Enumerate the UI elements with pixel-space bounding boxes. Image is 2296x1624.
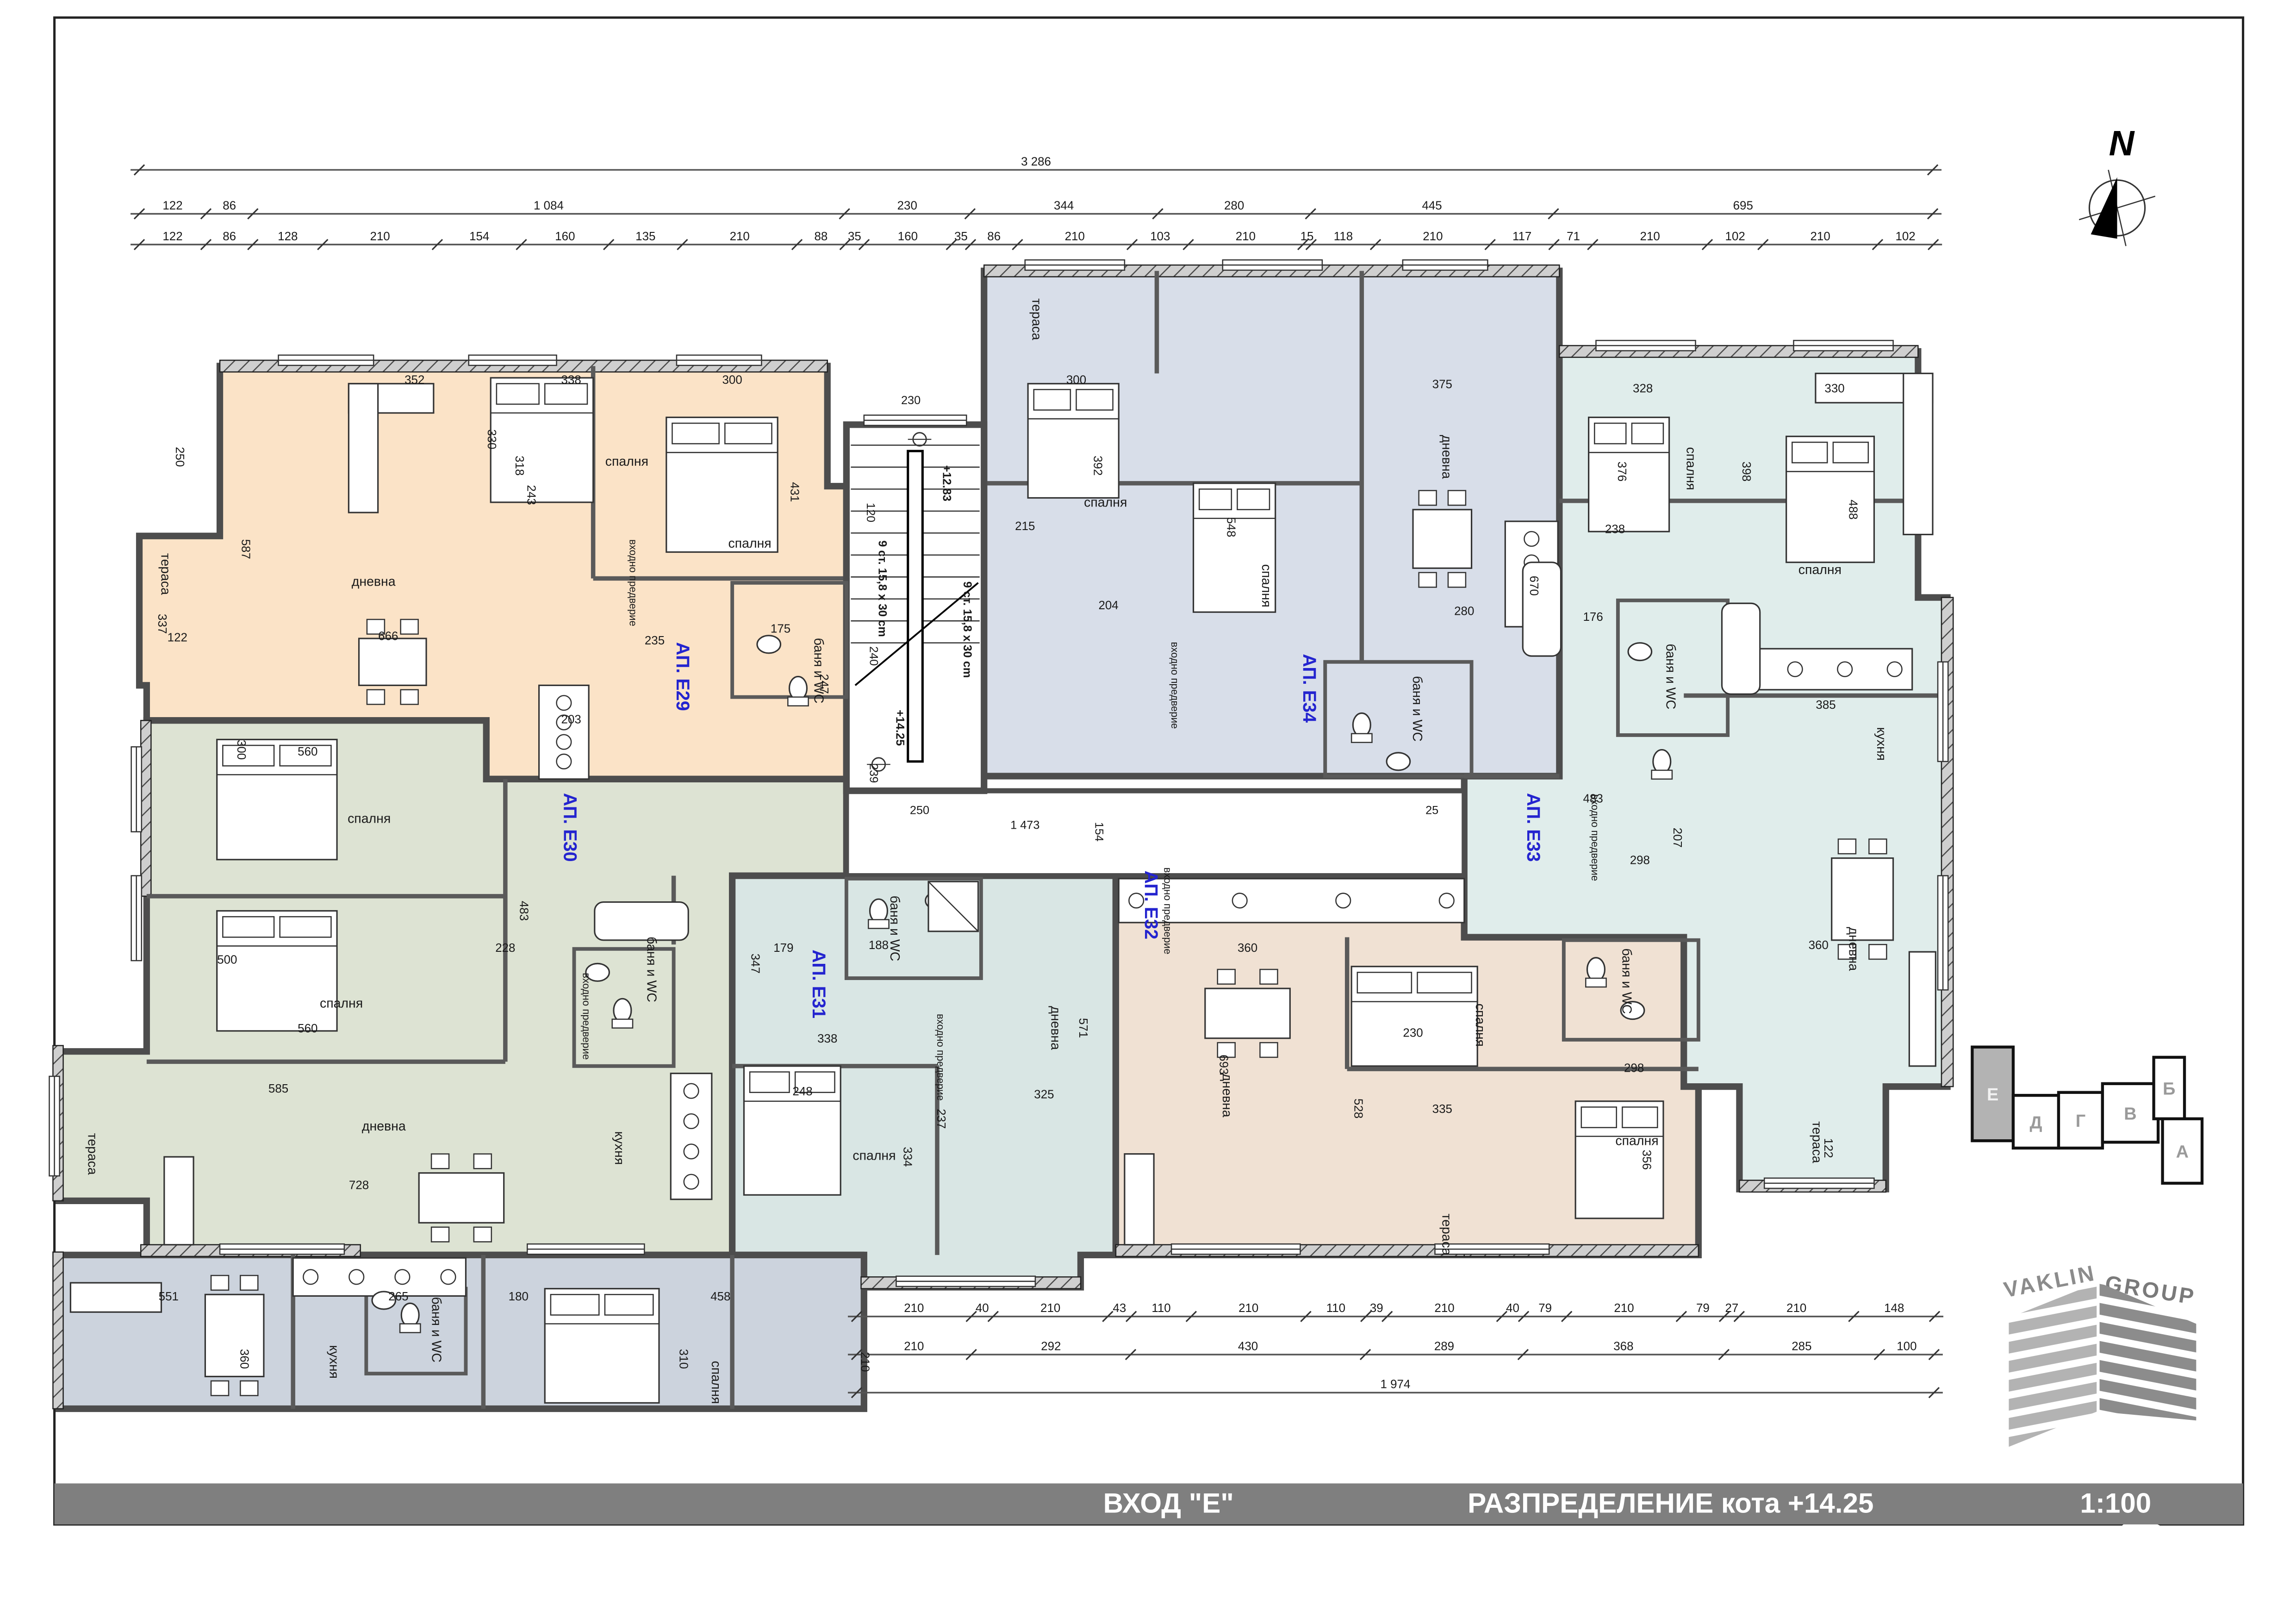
dim-value: 360 xyxy=(1238,942,1257,955)
dim-value: 1 974 xyxy=(1380,1378,1410,1391)
sofa xyxy=(1904,374,1933,535)
dim-value: 670 xyxy=(1527,576,1540,596)
chair xyxy=(1218,969,1235,984)
bed-pillow xyxy=(672,423,719,443)
dim-value: 100 xyxy=(1897,1340,1916,1353)
dim-value: 695 xyxy=(1733,199,1753,212)
room-label: спалня xyxy=(852,1148,896,1163)
dim-value: 35 xyxy=(954,230,968,243)
bed-pillow xyxy=(1237,489,1269,510)
room-label: входно предверие xyxy=(628,539,639,626)
hatched-wall xyxy=(141,720,151,896)
dim-value: 210 xyxy=(730,230,750,243)
chair xyxy=(1419,491,1437,506)
dim-value: 356 xyxy=(1640,1150,1653,1170)
dim-value: 330 xyxy=(485,429,498,449)
stair-text: 9 ст. 15,8 х 30 cm xyxy=(961,581,974,678)
apartment-label-e32: АП. Е32 xyxy=(1141,870,1161,939)
dim-value: 318 xyxy=(513,456,526,475)
keyplan-letter-Е: Е xyxy=(1987,1085,1998,1105)
dim-value: 188 xyxy=(869,939,889,952)
dim-value: 265 xyxy=(388,1290,408,1303)
dim-value: 40 xyxy=(976,1302,989,1315)
kitchen-counter xyxy=(293,1258,466,1296)
dim-value: 210 xyxy=(904,1340,924,1353)
bed-pillow xyxy=(497,384,539,404)
chair xyxy=(1869,944,1886,959)
room-label: баня и WC xyxy=(1619,948,1634,1014)
dim-value: 110 xyxy=(1151,1302,1170,1315)
dim-value: 210 xyxy=(1434,1302,1454,1315)
dim-value: 430 xyxy=(1238,1340,1258,1353)
stair-text: +12.83 xyxy=(940,465,953,501)
bed-pillow xyxy=(750,1072,789,1092)
dim-value: 27 xyxy=(1725,1302,1739,1315)
toilet-tank xyxy=(612,1019,633,1028)
chair xyxy=(1448,491,1466,506)
bed-pillow xyxy=(551,1294,599,1315)
dim-value: 338 xyxy=(561,374,581,387)
corridor xyxy=(846,791,1464,875)
chair xyxy=(1838,839,1856,854)
dim-value: 102 xyxy=(1895,230,1915,243)
room-label: дневна xyxy=(352,574,396,589)
room-label: входно предверие xyxy=(1162,868,1173,955)
dim-value: 458 xyxy=(710,1290,730,1303)
dim-value: 86 xyxy=(223,199,236,212)
dim-value: 210 xyxy=(1640,230,1660,243)
dim-value: 86 xyxy=(223,230,236,243)
chair xyxy=(474,1227,492,1242)
dim-value: 280 xyxy=(1454,605,1474,618)
dim-value: 352 xyxy=(404,374,424,387)
dim-value: 728 xyxy=(349,1179,369,1192)
title-scale: 1:100 xyxy=(2080,1488,2152,1519)
dim-value: 548 xyxy=(1224,517,1237,537)
room-label: кухня xyxy=(1874,727,1889,761)
dim-value: 280 xyxy=(1224,199,1244,212)
dim-value: 210 xyxy=(370,230,390,243)
dim-value: 1 084 xyxy=(534,199,564,212)
dim-value: 88 xyxy=(815,230,828,243)
dim-value: 325 xyxy=(1034,1088,1054,1101)
bathtub xyxy=(1722,603,1760,694)
room-label: тераса xyxy=(1810,1121,1824,1163)
dim-value: 103 xyxy=(1150,230,1170,243)
stair-text: 239 xyxy=(867,763,880,783)
dim-value: 118 xyxy=(1334,230,1353,243)
dim-value: 210 xyxy=(1810,230,1830,243)
toilet-tank xyxy=(1351,734,1372,743)
dim-value: 210 xyxy=(1614,1302,1634,1315)
kitchen-counter xyxy=(539,685,589,779)
dim-value: 230 xyxy=(897,199,917,212)
dim-value: 347 xyxy=(748,954,761,974)
bed-pillow xyxy=(1357,972,1412,993)
keyplan-letter-Г: Г xyxy=(2076,1112,2086,1131)
room-label: спалня xyxy=(709,1361,723,1404)
dim-value: 40 xyxy=(1506,1302,1519,1315)
dim-value: 210 xyxy=(859,1352,871,1372)
room-label: спалня xyxy=(605,454,648,469)
chair xyxy=(401,619,418,634)
room-label: баня и WC xyxy=(644,937,659,1002)
dim-value: 235 xyxy=(645,634,665,647)
toilet-tank xyxy=(1586,978,1606,987)
dim-value: 587 xyxy=(239,539,252,559)
dim-value: 334 xyxy=(901,1147,914,1167)
dim-value: 180 xyxy=(509,1290,529,1303)
room-label: баня и WC xyxy=(811,638,826,704)
dim-value: 666 xyxy=(378,630,398,643)
toilet-tank xyxy=(788,697,808,706)
dim-value: 360 xyxy=(237,1349,250,1369)
room-label: дневна xyxy=(1048,1006,1063,1050)
chair xyxy=(474,1154,492,1169)
room-label: спалня xyxy=(1259,564,1274,607)
bed-pillow xyxy=(545,384,587,404)
dim-value: 585 xyxy=(268,1082,288,1095)
dim-value: 122 xyxy=(168,631,187,644)
dim-value: 298 xyxy=(1630,854,1650,867)
stair-text: 9 ст. 15,8 х 30 cm xyxy=(876,540,889,637)
bed-pillow xyxy=(1594,423,1626,443)
bed-pillow xyxy=(1418,972,1472,993)
dim-value: 551 xyxy=(159,1290,179,1303)
chair xyxy=(1260,969,1277,984)
dim-value: 560 xyxy=(298,1022,317,1035)
room-label: спалня xyxy=(320,996,363,1011)
dim-value: 344 xyxy=(1054,199,1074,212)
dim-value: 483 xyxy=(517,901,530,921)
dim-value: 102 xyxy=(1725,230,1745,243)
bed-pillow xyxy=(1632,423,1663,443)
hatched-wall xyxy=(53,1252,63,1409)
dim-value: 210 xyxy=(1065,230,1085,243)
room-label: тераса xyxy=(158,553,173,595)
dim-value: 39 xyxy=(1370,1302,1383,1315)
dining-table xyxy=(1413,510,1472,568)
keyplan-letter-А: А xyxy=(2176,1143,2189,1162)
dim-value: 300 xyxy=(235,740,248,760)
dim-value: 398 xyxy=(1740,462,1753,481)
corridor-dim: 1 473 xyxy=(1010,818,1039,831)
room-label: спалня xyxy=(1684,447,1699,490)
room-label: баня и WC xyxy=(1410,676,1425,742)
logo-monogram-v: V xyxy=(2022,1168,2083,1280)
dim-value: 528 xyxy=(1352,1099,1365,1118)
dim-value: 431 xyxy=(788,482,801,502)
dim-value: 571 xyxy=(1076,1018,1089,1038)
chair xyxy=(1869,839,1886,854)
sofa xyxy=(348,384,378,512)
dim-value: 175 xyxy=(771,623,790,636)
drawing-sheet: +12.839 ст. 15,8 х 30 cm9 ст. 15,8 х 30 … xyxy=(0,0,2296,1624)
room-label: дневна xyxy=(1846,927,1861,971)
bed-pillow xyxy=(223,745,274,766)
sofa xyxy=(70,1283,161,1312)
north-label: N xyxy=(2109,124,2135,163)
bed-pillow xyxy=(1076,389,1113,410)
apartment-label-e29: АП. Е29 xyxy=(672,642,693,711)
dim-value: 248 xyxy=(792,1085,812,1098)
stair-text: 120 xyxy=(864,503,877,522)
dim-value: 86 xyxy=(987,230,1001,243)
dim-value: 560 xyxy=(298,745,317,758)
stair-text: 230 xyxy=(901,394,921,407)
room-label: тераса xyxy=(85,1133,100,1174)
stair-text: 240 xyxy=(867,646,880,666)
bed-pillow xyxy=(1034,389,1070,410)
sink xyxy=(1387,753,1410,770)
apartment-label-e31: АП. Е31 xyxy=(809,949,829,1018)
chair xyxy=(240,1275,258,1290)
bed-pillow xyxy=(725,423,772,443)
corridor-dim: 25 xyxy=(1425,804,1438,817)
dim-value: 43 xyxy=(1113,1302,1126,1315)
dim-value: 160 xyxy=(555,230,575,243)
chair xyxy=(1448,573,1466,587)
chair xyxy=(240,1381,258,1396)
sofa xyxy=(164,1157,193,1245)
dim-value: 122 xyxy=(162,230,182,243)
dim-value: 330 xyxy=(1824,382,1844,395)
bed-pillow xyxy=(1792,442,1827,462)
apartment-label-e30: АП. Е30 xyxy=(560,793,580,862)
room-label: тераса xyxy=(1439,1213,1454,1255)
dining-table xyxy=(1832,858,1893,940)
chair xyxy=(211,1275,229,1290)
room-label: входно предверие xyxy=(581,973,592,1060)
dim-value: 238 xyxy=(1605,523,1625,536)
toilet xyxy=(614,999,631,1022)
sink xyxy=(1628,643,1652,661)
bed-pillow xyxy=(1581,1107,1617,1127)
dim-value: 375 xyxy=(1432,378,1452,391)
room-label: входно предверие xyxy=(1169,642,1181,729)
room-label: дневна xyxy=(1439,435,1454,479)
toilet-tank xyxy=(400,1324,420,1333)
title-bar: ВХОД "Е" РАЗПРЕДЕЛЕНИЕ кота +14.25 1:100 xyxy=(55,1483,2243,1524)
room-label: входно предверие xyxy=(1589,794,1601,881)
room-label: спалня xyxy=(1798,562,1842,577)
room-label: кухня xyxy=(612,1131,627,1165)
dim-value: 488 xyxy=(1847,500,1860,519)
dim-value: 148 xyxy=(1884,1302,1904,1315)
dining-table xyxy=(1205,988,1290,1038)
dim-value: 79 xyxy=(1696,1302,1710,1315)
chair xyxy=(1419,573,1437,587)
chair xyxy=(1260,1043,1277,1057)
dim-value: 128 xyxy=(278,230,298,243)
dim-value: 110 xyxy=(1326,1302,1345,1315)
chair xyxy=(431,1227,449,1242)
bathtub xyxy=(595,902,688,940)
dim-value: 160 xyxy=(898,230,918,243)
dim-value: 122 xyxy=(162,199,182,212)
dim-value: 210 xyxy=(1423,230,1443,243)
dim-value: 203 xyxy=(561,713,581,726)
dim-value: 210 xyxy=(1238,1302,1258,1315)
room-label: спалня xyxy=(1473,1004,1487,1047)
dim-value: 207 xyxy=(1671,828,1684,848)
dim-value: 117 xyxy=(1512,230,1531,243)
dim-value: 385 xyxy=(1816,699,1836,712)
kitchen-counter xyxy=(671,1074,712,1199)
bed-pillow xyxy=(1199,489,1232,510)
dim-value: 179 xyxy=(773,942,793,955)
chair xyxy=(367,690,385,705)
dim-value: 15 xyxy=(1300,230,1314,243)
chair xyxy=(431,1154,449,1169)
dim-value: 210 xyxy=(1786,1302,1806,1315)
chair xyxy=(401,690,418,705)
title-entrance: ВХОД "Е" xyxy=(1103,1488,1234,1519)
dim-value: 289 xyxy=(1434,1340,1454,1353)
room-label: входно предверие xyxy=(935,1014,946,1101)
keyplan-letter-Б: Б xyxy=(2163,1079,2175,1099)
dining-table xyxy=(205,1294,264,1376)
dim-value: 360 xyxy=(1809,939,1829,952)
bed-pillow xyxy=(223,917,274,937)
toilet-tank xyxy=(1652,770,1672,779)
bed-pillow xyxy=(605,1294,653,1315)
dim-value: 310 xyxy=(677,1349,690,1369)
corridor-dim: 250 xyxy=(910,804,929,817)
dim-value: 35 xyxy=(848,230,861,243)
room-label: спалня xyxy=(1084,495,1127,510)
dim-value: 335 xyxy=(1432,1103,1452,1116)
bed-pillow xyxy=(1833,442,1868,462)
dim-value: 693 xyxy=(1217,1055,1230,1074)
title-distribution: РАЗПРЕДЕЛЕНИЕ кота +14.25 xyxy=(1468,1488,1873,1519)
keyplan-letter-В: В xyxy=(2124,1104,2136,1124)
dim-value: 368 xyxy=(1613,1340,1633,1353)
stair-text: +14.25 xyxy=(893,710,906,746)
dim-value: 71 xyxy=(1567,230,1580,243)
dim-value: 300 xyxy=(722,374,742,387)
room-label: спалня xyxy=(728,536,772,551)
dim-value: 210 xyxy=(1040,1302,1060,1315)
dim-value: 228 xyxy=(495,942,515,955)
dim-value: 210 xyxy=(1236,230,1256,243)
dim-value: 135 xyxy=(635,230,655,243)
apartment-label-e33: АП. Е33 xyxy=(1523,793,1543,862)
dim-value: 250 xyxy=(173,447,186,467)
dim-value: 285 xyxy=(1792,1340,1811,1353)
keyplan-letter-Д: Д xyxy=(2029,1113,2042,1132)
floor-plan-canvas: +12.839 ст. 15,8 х 30 cm9 ст. 15,8 х 30 … xyxy=(0,0,2296,1624)
plan-geometry: +12.839 ст. 15,8 х 30 cm9 ст. 15,8 х 30 … xyxy=(50,260,1954,1409)
dim-value: 328 xyxy=(1633,382,1653,395)
sink xyxy=(757,636,781,653)
room-label: баня и WC xyxy=(1663,644,1678,710)
dim-value: 215 xyxy=(1015,520,1035,533)
dim-value: 210 xyxy=(904,1302,924,1315)
toilet xyxy=(1587,958,1605,981)
dim-value: 237 xyxy=(934,1109,947,1129)
dining-table xyxy=(419,1173,504,1223)
dim-value: 337 xyxy=(156,614,168,634)
dim-value: 79 xyxy=(1538,1302,1552,1315)
dim-value: 392 xyxy=(1091,456,1104,475)
dim-value: 230 xyxy=(1403,1027,1423,1040)
dim-value: 243 xyxy=(524,485,537,505)
stair-handrail xyxy=(908,451,923,762)
chair xyxy=(211,1381,229,1396)
dim-value: 3 286 xyxy=(1021,155,1051,168)
dim-value: 300 xyxy=(1066,374,1086,387)
room-label: дневна xyxy=(362,1119,406,1134)
corridor-dim: 154 xyxy=(1093,822,1106,842)
apartment-label-e34: АП. Е34 xyxy=(1299,654,1319,723)
room-label: дневна xyxy=(1220,1074,1234,1118)
room-label: баня и WC xyxy=(887,896,902,962)
dim-value: 176 xyxy=(1583,611,1603,624)
dim-value: 376 xyxy=(1615,462,1628,481)
dim-value: 204 xyxy=(1098,599,1118,612)
dim-value: 154 xyxy=(469,230,489,243)
room-label: спалня xyxy=(1615,1134,1658,1149)
dining-table xyxy=(359,638,427,685)
sofa xyxy=(1909,952,1935,1066)
room-label: тераса xyxy=(1029,298,1044,340)
toilet-tank xyxy=(868,919,889,928)
sofa xyxy=(1125,1154,1154,1245)
room-label: кухня xyxy=(326,1345,341,1379)
bed-pillow xyxy=(280,917,331,937)
bed-pillow xyxy=(1622,1107,1657,1127)
dim-value: 445 xyxy=(1422,199,1442,212)
dim-value: 292 xyxy=(1041,1340,1061,1353)
room-label: спалня xyxy=(348,812,391,826)
room-label: баня и WC xyxy=(429,1297,444,1362)
dim-value: 338 xyxy=(817,1032,837,1045)
dim-value: 298 xyxy=(1624,1062,1644,1074)
toilet xyxy=(401,1303,419,1327)
dim-value: 500 xyxy=(217,953,237,966)
